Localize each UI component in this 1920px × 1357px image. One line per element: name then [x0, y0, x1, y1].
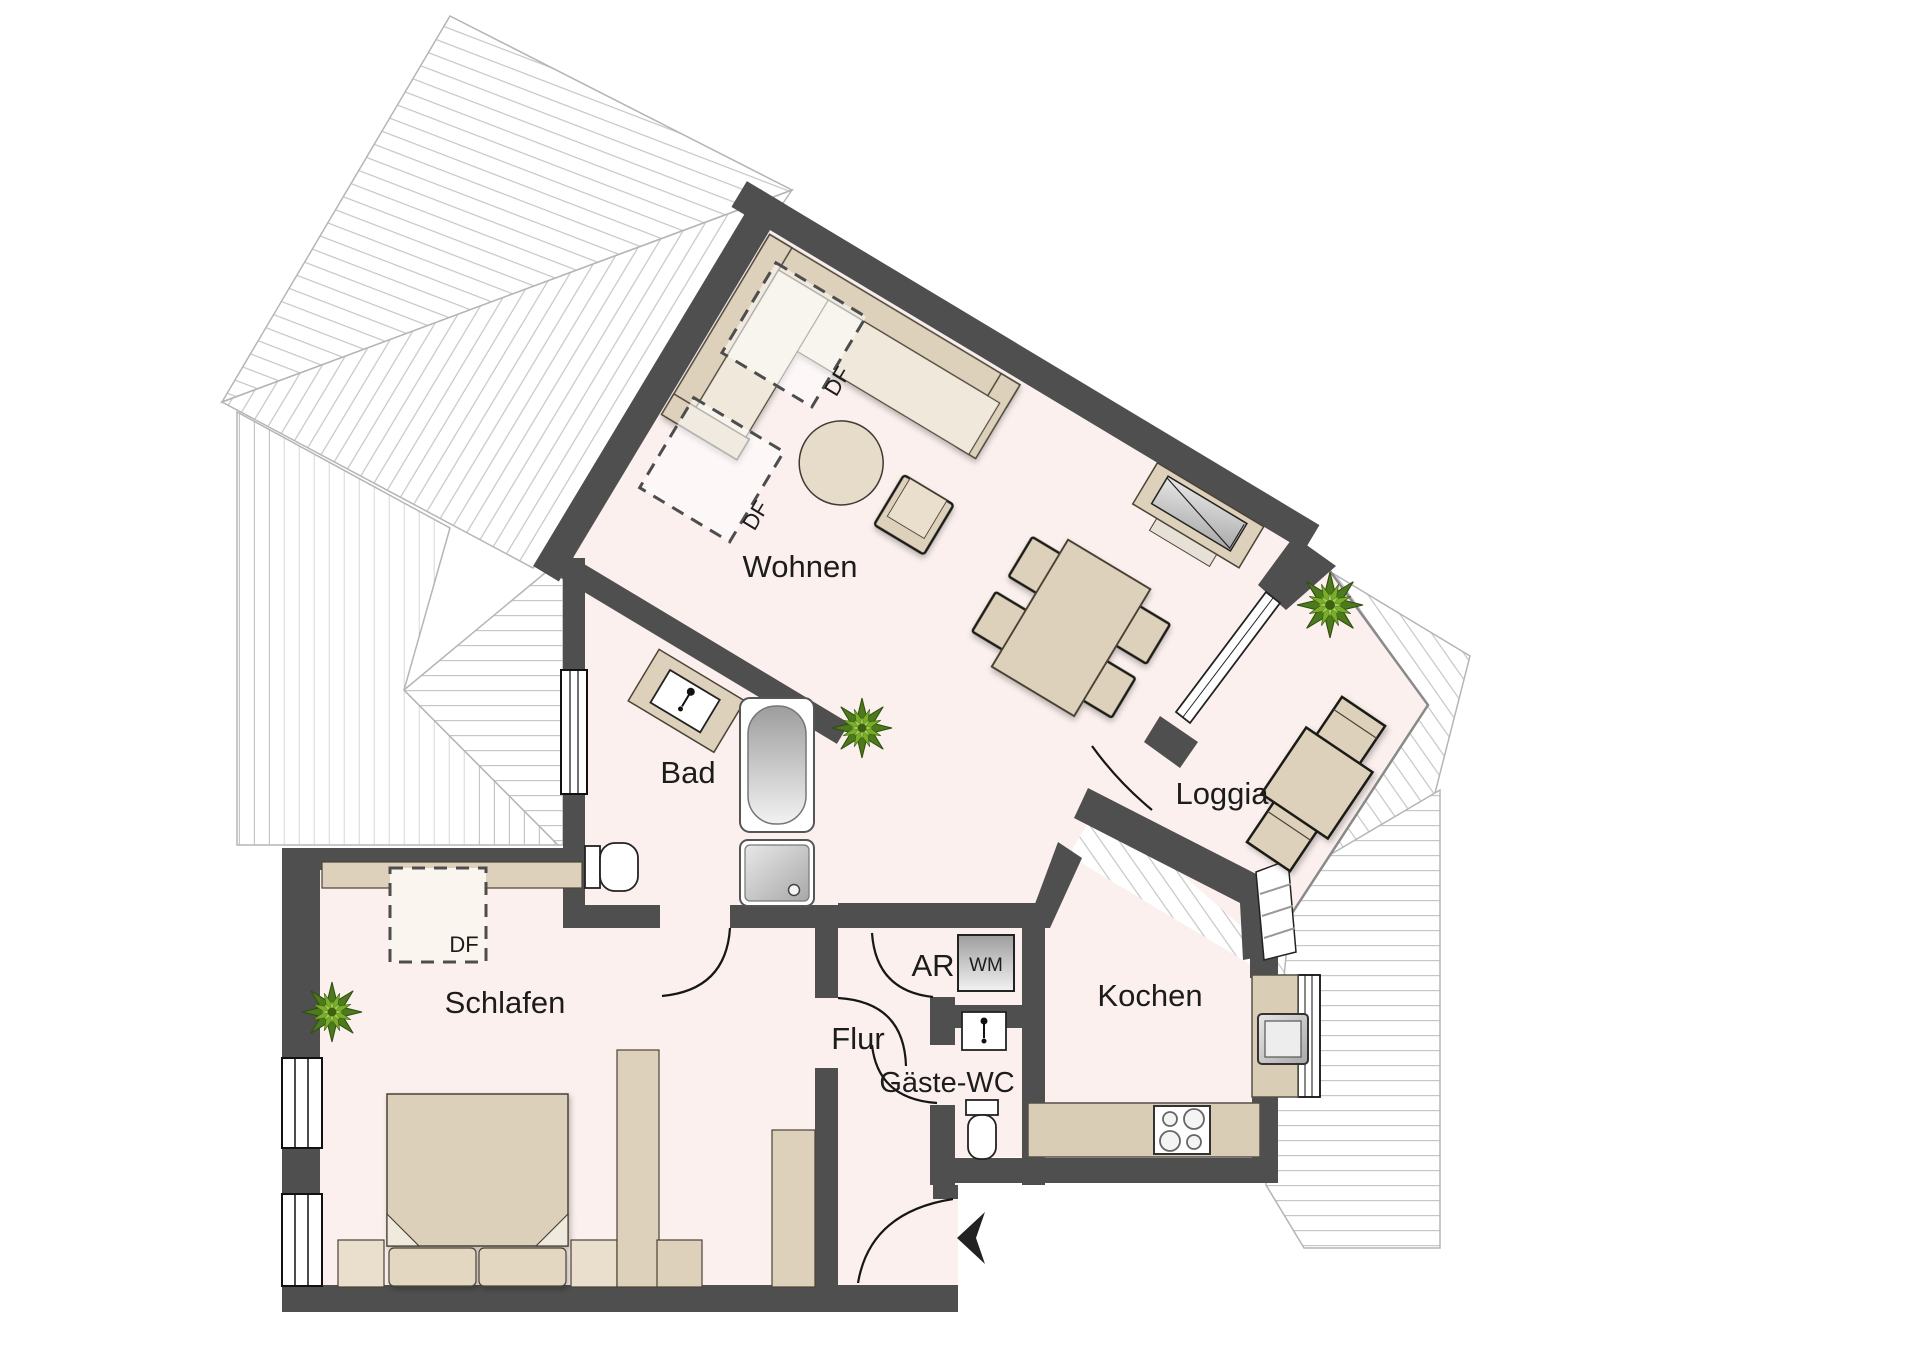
wardrobe-side	[772, 1130, 815, 1287]
room-label-loggia: Loggia	[1175, 776, 1269, 811]
room-label-guestwc: Gäste-WC	[879, 1067, 1014, 1099]
plant-icon	[832, 698, 892, 758]
room-label-bedroom: Schlafen	[445, 985, 566, 1020]
plant-icon	[1297, 572, 1363, 638]
drain-icon	[789, 885, 800, 896]
wall-storage-left	[930, 997, 955, 1045]
bedroom-window-1	[282, 1058, 322, 1148]
guestwc-sink-icon	[962, 1012, 1006, 1050]
loggia-kitchen-window	[1256, 860, 1296, 960]
entrance-arrow-icon	[957, 1212, 985, 1264]
bathtub	[740, 698, 814, 832]
wardrobe-foot	[657, 1240, 702, 1287]
plant-icon	[302, 982, 362, 1042]
bath-window	[561, 670, 587, 794]
room-label-kitchen: Kochen	[1097, 978, 1202, 1013]
room-label-storage: AR	[911, 948, 954, 983]
pillow	[479, 1248, 566, 1286]
shower	[740, 840, 814, 906]
toilet-icon	[585, 843, 638, 891]
wall-entry-stub	[933, 1185, 958, 1199]
kitchen-sink-icon	[1258, 1014, 1308, 1064]
room-label-living: Wohnen	[743, 549, 858, 584]
room-label-hall: Flur	[831, 1021, 884, 1056]
wall-bottom	[282, 1285, 958, 1312]
hob-icon	[1154, 1106, 1210, 1154]
wm-label: WM	[969, 955, 1003, 976]
guestwc-toilet-icon	[966, 1100, 998, 1159]
room-label-bath: Bad	[660, 755, 715, 790]
wall-kitchen-bottom	[933, 1158, 1278, 1183]
wall-storage-top	[838, 903, 1045, 928]
nightstand	[571, 1240, 617, 1287]
wardrobe-tall	[617, 1050, 659, 1287]
floor-plan-svg: DF DF	[0, 0, 1920, 1357]
bedroom-window-2	[282, 1194, 322, 1286]
kitchen-counter	[1028, 1103, 1260, 1157]
pillow	[389, 1248, 476, 1286]
nightstand	[338, 1240, 384, 1287]
df-label-3: DF	[449, 932, 478, 957]
floor-plan-page: DF DF	[0, 0, 1920, 1357]
wall-hall-left	[815, 905, 838, 1312]
